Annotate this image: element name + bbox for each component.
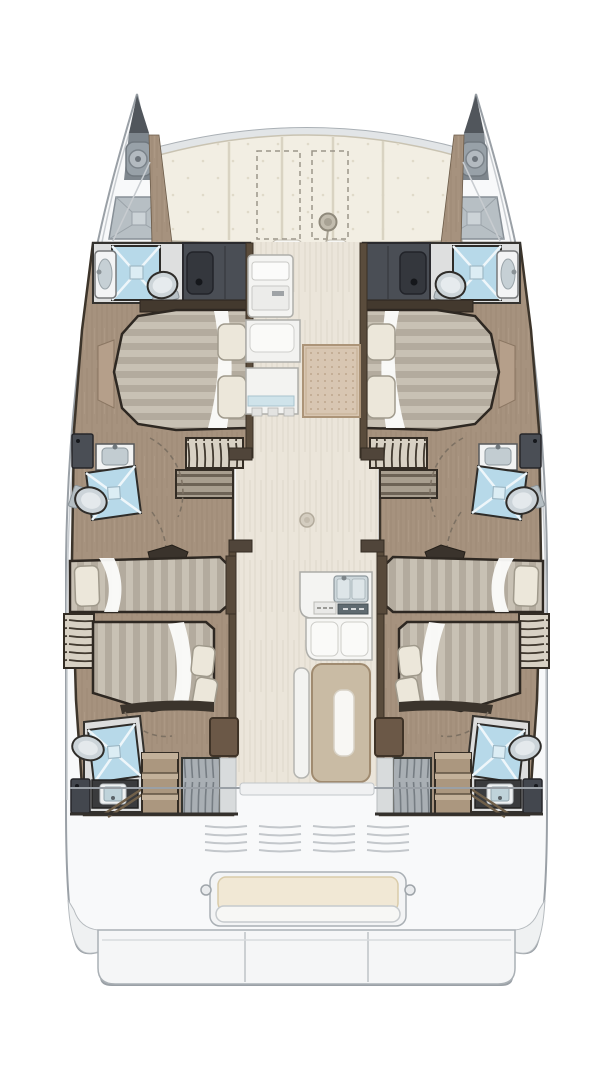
oven-panel — [252, 286, 289, 310]
catamaran-floorplan-canvas — [0, 0, 613, 1080]
salon-rug-dots — [306, 348, 357, 414]
galley-drawer-3 — [284, 408, 294, 416]
oven-display — [272, 291, 284, 296]
sink-basin-left — [337, 579, 350, 599]
galley-drawer-2 — [268, 408, 278, 416]
foredeck-sunpad — [152, 135, 462, 252]
settee — [306, 618, 372, 660]
dinette — [294, 664, 370, 782]
galley-forward — [246, 255, 300, 416]
bench-pin-right — [405, 885, 415, 895]
fridge-panel — [252, 262, 289, 280]
sink-basin-right — [352, 579, 365, 599]
bench-pin-left — [201, 885, 211, 895]
galley-drawer-1 — [252, 408, 262, 416]
settee-cushion-1 — [311, 622, 338, 656]
sunpad-dots — [152, 135, 461, 244]
floor-hatch-dot-inner — [304, 517, 310, 523]
sliding-door-threshold — [240, 783, 374, 795]
transom-platform — [98, 930, 515, 984]
settee-cushion-2 — [341, 622, 368, 656]
floorplan-svg — [0, 0, 613, 1080]
galley-sink-unit — [246, 368, 298, 414]
winch-center — [324, 218, 332, 226]
aft-bench-lip — [216, 906, 400, 922]
dinette-bench — [294, 668, 309, 778]
galley-aft — [300, 572, 372, 618]
galley-faucet — [342, 576, 347, 581]
table-insert — [334, 690, 354, 756]
galley-glass-strip — [248, 396, 294, 406]
galley-mid-panel — [250, 324, 294, 352]
